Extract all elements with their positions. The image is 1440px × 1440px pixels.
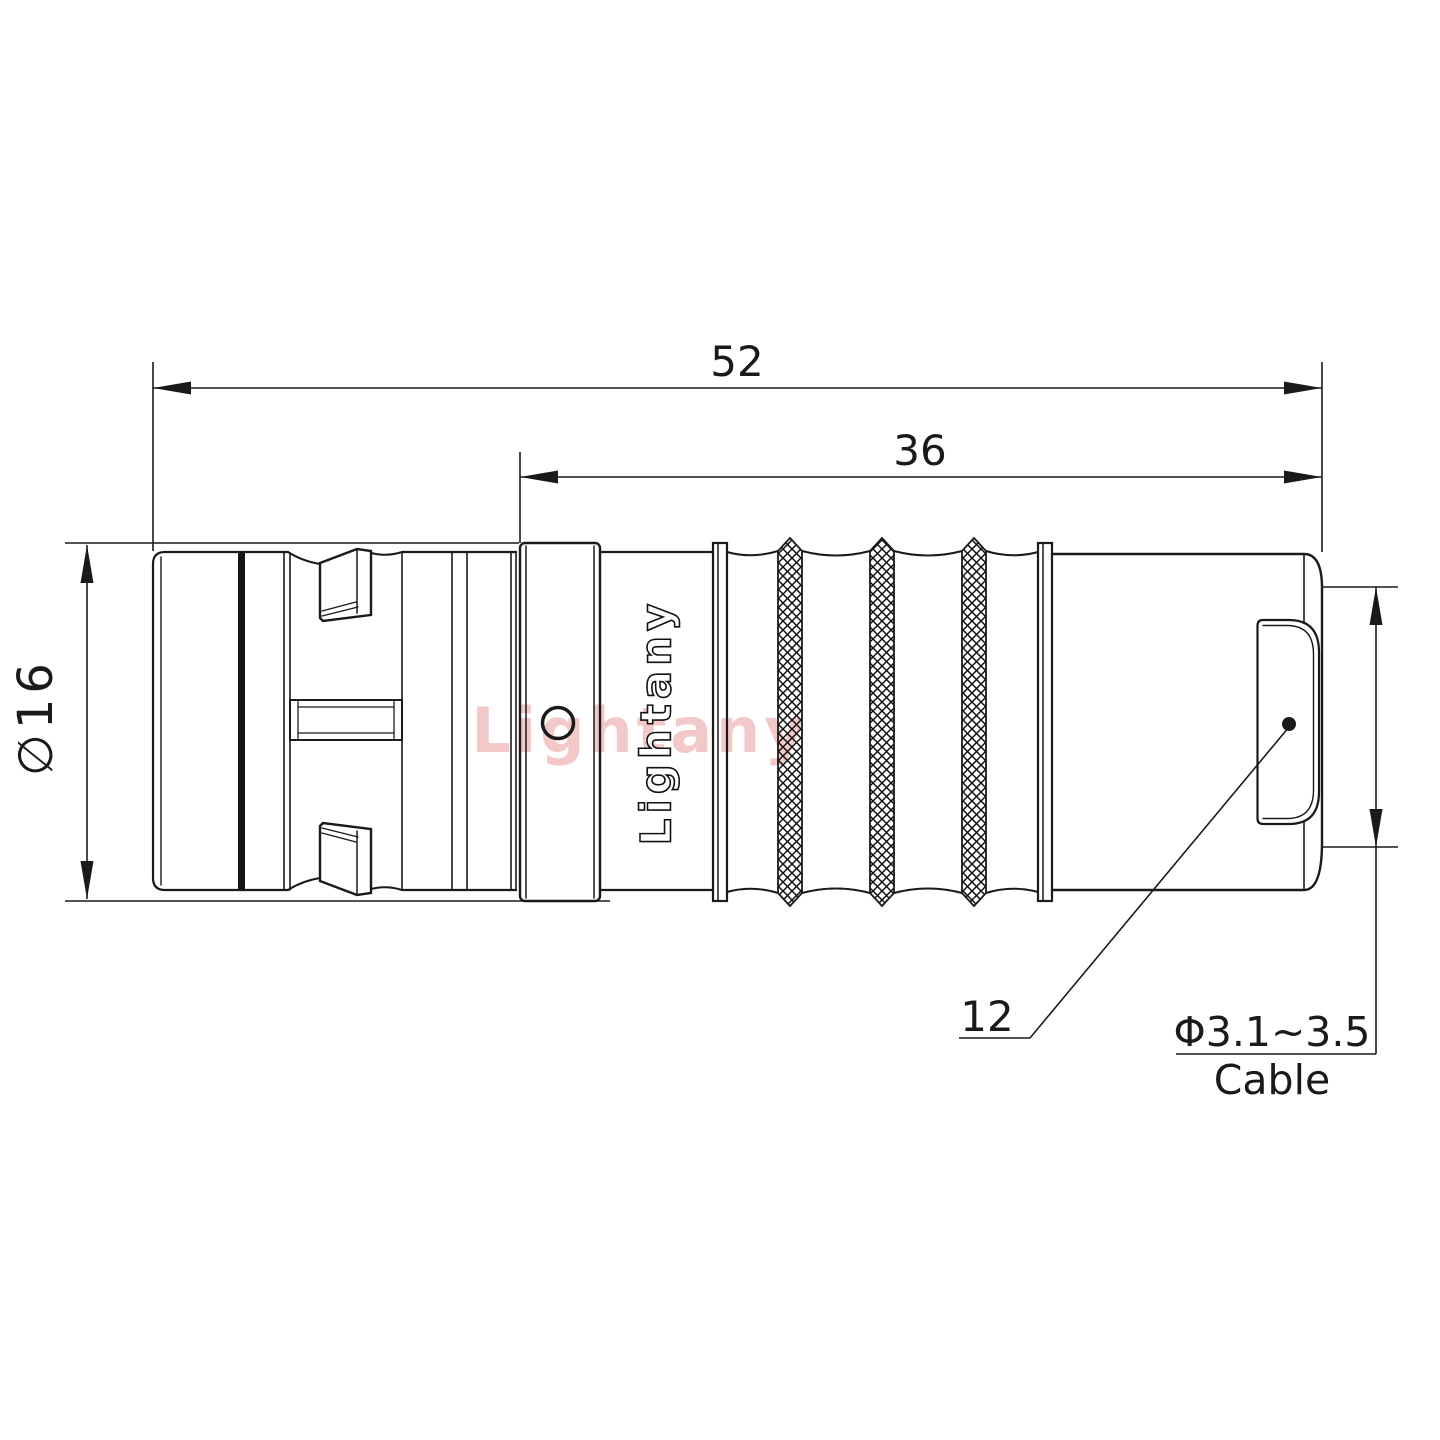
dim-text-rear-length: 36 bbox=[893, 426, 946, 475]
dim-end-face bbox=[1323, 587, 1398, 1054]
knurl-band-3 bbox=[962, 538, 986, 906]
cable-label-text: Cable bbox=[1214, 1056, 1330, 1104]
arrowhead-right bbox=[1284, 382, 1322, 395]
arrowhead-down bbox=[1370, 809, 1383, 847]
arrowhead-left bbox=[153, 382, 191, 395]
connector-drawing: Lightany bbox=[0, 0, 1440, 1440]
cable-range-text: Φ3.1~3.5 bbox=[1173, 1008, 1370, 1056]
arrowhead-up bbox=[1370, 587, 1383, 625]
arrowhead-left bbox=[520, 471, 558, 484]
arrowhead-up bbox=[81, 545, 94, 583]
dim-total-length bbox=[153, 362, 1322, 552]
dim-text-shell-diameter: ∅16 bbox=[8, 658, 64, 776]
locking-groove bbox=[238, 552, 245, 890]
arrowhead-right bbox=[1284, 471, 1322, 484]
arrowhead-down bbox=[81, 861, 94, 899]
bayonet-slot bbox=[290, 700, 402, 740]
logo-text-vertical: Lightany bbox=[632, 599, 681, 846]
knurl-band-1 bbox=[778, 538, 802, 906]
dim-text-total-length: 52 bbox=[710, 337, 763, 386]
leader-dot bbox=[1282, 717, 1296, 731]
knurl-band-2 bbox=[870, 538, 894, 906]
dim-text-end-face: 12 bbox=[960, 992, 1013, 1041]
technical-drawing-page: Lightany bbox=[0, 0, 1440, 1440]
